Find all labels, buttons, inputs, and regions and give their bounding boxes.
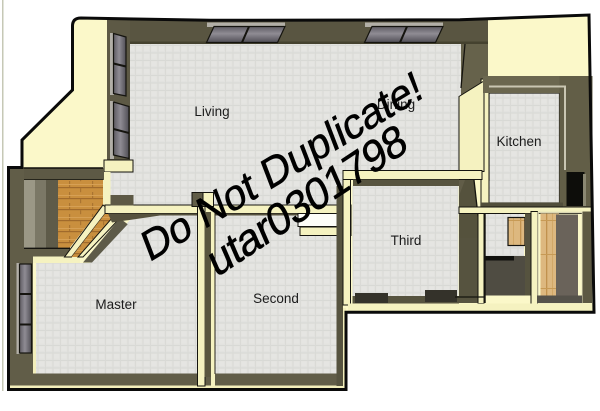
svg-text:Living: Living — [194, 104, 229, 119]
svg-text:Master: Master — [95, 297, 137, 312]
svg-text:Second: Second — [253, 291, 299, 306]
svg-text:Kitchen: Kitchen — [496, 134, 541, 149]
svg-text:Third: Third — [391, 233, 422, 248]
